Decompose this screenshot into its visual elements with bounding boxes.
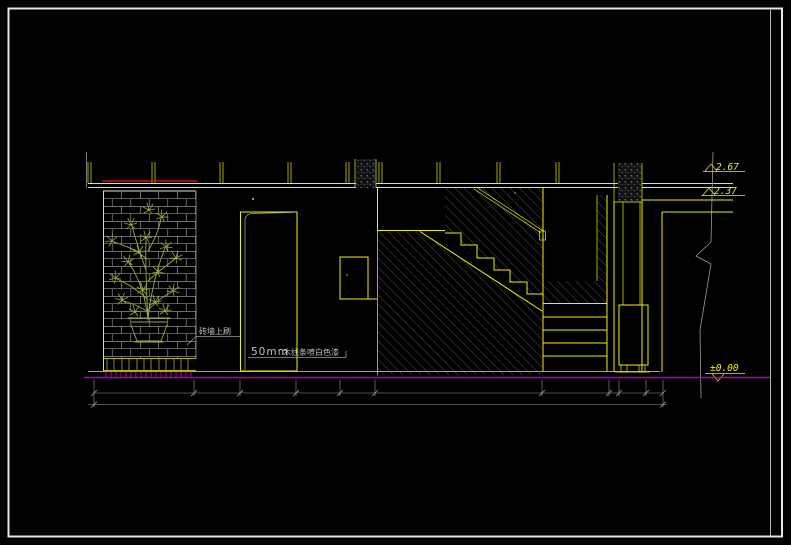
elevation-drawing: 2.67 2.37 ±0.00 [0, 0, 791, 545]
wall-note-text: 砖墙上刷 [199, 326, 231, 336]
dimension-lines [88, 380, 667, 408]
elevation-mid-value: 2.37 [714, 186, 737, 197]
stray-dot [252, 198, 254, 200]
side-step-box [340, 257, 377, 299]
stray-dot [514, 192, 516, 194]
elevation-floor-value: ±0.00 [710, 363, 739, 374]
brick-wall [103, 191, 196, 372]
trim-note-text: 木线条喷白色漆 [283, 347, 339, 357]
elevation-marker-upper: 2.67 [703, 162, 745, 173]
ceiling-joists [88, 162, 559, 183]
brick-pattern [103, 191, 196, 358]
beam-box [377, 188, 445, 231]
base-course [103, 359, 196, 371]
column [614, 202, 642, 372]
break-line [696, 152, 713, 398]
cabinet-foot [621, 365, 627, 372]
hatch-right-wall [543, 195, 607, 303]
stray-dot [346, 274, 348, 276]
concrete-beam-section-1 [355, 159, 376, 188]
trim-note: 50mm 木线条喷白色漆 [248, 346, 346, 358]
skirting-ticks [106, 372, 191, 377]
elevation-upper-value: 2.67 [716, 162, 739, 173]
cad-drawing-canvas[interactable]: 2.67 2.37 ±0.00 [0, 0, 791, 545]
concrete-beam-section-2 [614, 163, 642, 202]
cabinet [615, 305, 650, 372]
